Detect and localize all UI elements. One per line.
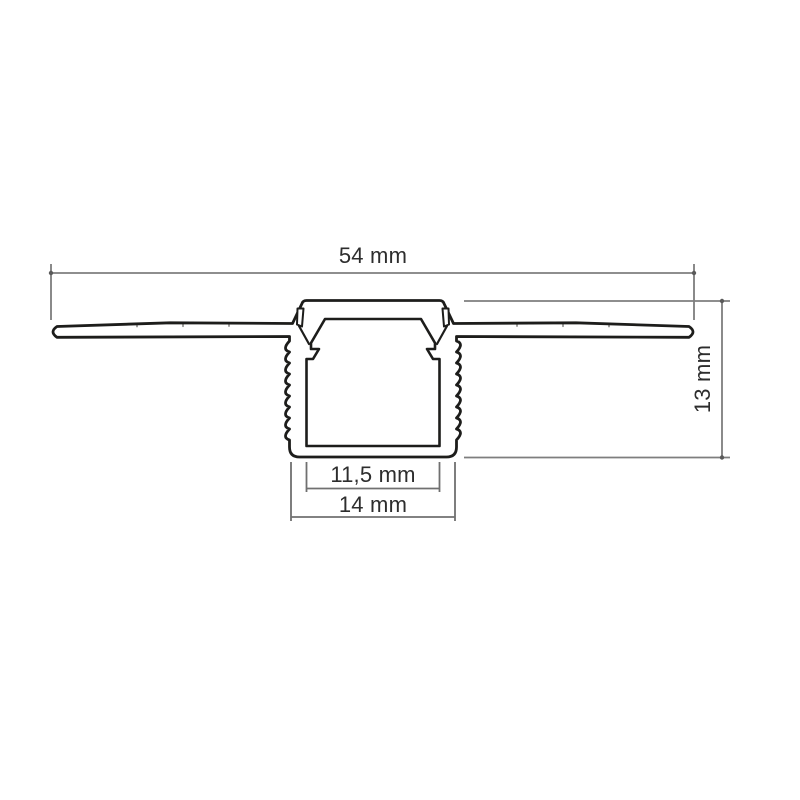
profile-cavity [307,319,440,446]
dim-54-end-left [49,271,53,275]
drawing-canvas: 54 mm 13 mm 11,5 mm 14 mm [0,0,800,800]
dim-label-outer-width: 14 mm [313,493,433,516]
dim-label-height: 13 mm [691,319,717,439]
dim-label-total-width: 54 mm [313,244,433,267]
cap-slot-right [443,309,450,327]
cap-slot-left [297,309,304,327]
dim-13-end-top [720,299,724,303]
dim-label-inner-width: 11,5 mm [310,463,436,486]
profile-section [53,301,693,458]
dim-13-end-bottom [720,455,724,459]
dim-54-end-right [692,271,696,275]
profile-technical-drawing [0,0,800,800]
